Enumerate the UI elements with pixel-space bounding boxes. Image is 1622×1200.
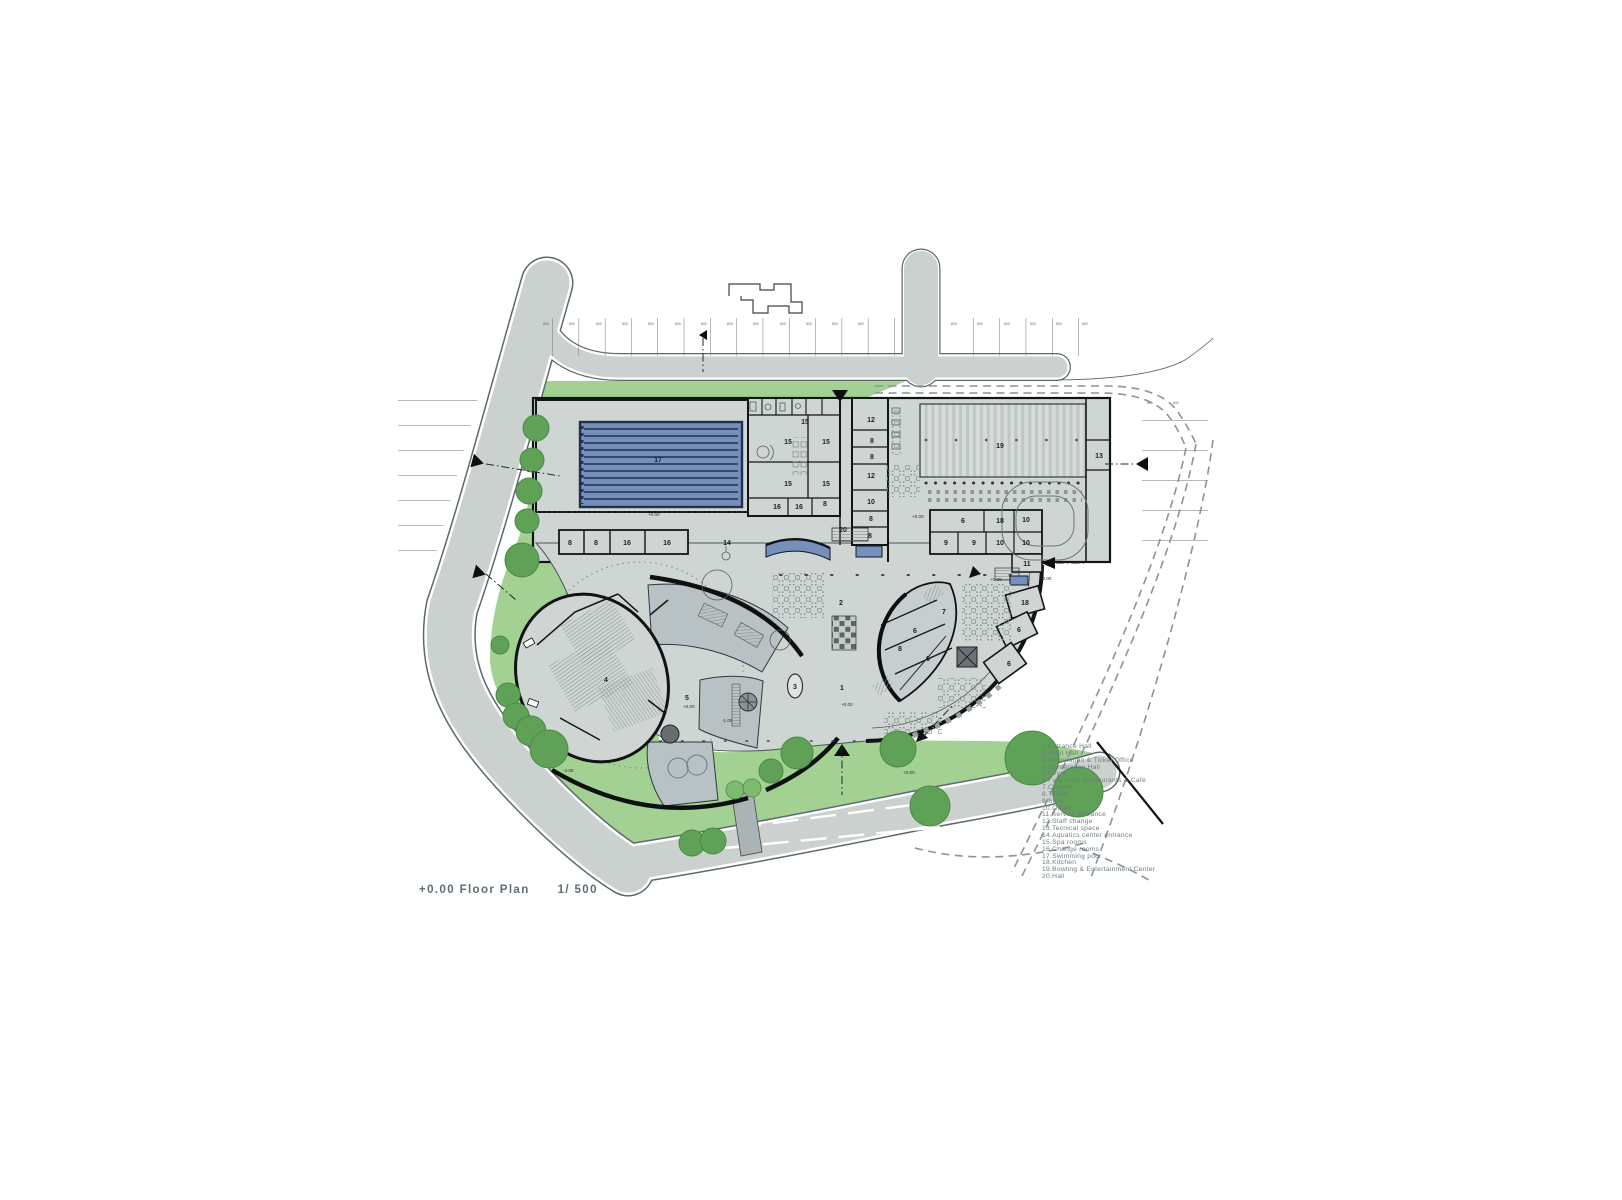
parking-dimension: 800 — [1030, 322, 1036, 326]
room-label: 8 — [870, 454, 874, 461]
parking-dimension: 800 — [977, 322, 983, 326]
legend: 1.Entrance Hall2.Main Hall3.Information … — [1042, 744, 1155, 881]
room-label: 10 — [1022, 540, 1030, 547]
room-label: 8 — [898, 646, 902, 653]
room-label: 18 — [996, 518, 1004, 525]
stairs — [732, 684, 740, 726]
parking-dimension: 800 — [675, 322, 681, 326]
parking-dimension: 800 — [1004, 322, 1010, 326]
room-label: 6 — [1007, 661, 1011, 668]
elevation-marker: -4.00 — [563, 768, 574, 773]
parking-dimension: 800 — [753, 322, 759, 326]
elevation-marker: +0.00 — [903, 770, 915, 775]
room-label: 6 — [913, 628, 917, 635]
parking-dimension: 800 — [569, 322, 575, 326]
room-label: 7 — [942, 609, 946, 616]
elevation-marker: +0.00 — [683, 704, 695, 709]
cafe-tables — [962, 583, 1012, 641]
sauna-benches — [791, 437, 807, 475]
room-label: 8 — [594, 540, 598, 547]
room-label: 15 — [784, 439, 792, 446]
legend-item: 20.Hall — [1042, 874, 1155, 881]
elevation-marker: +0.00 — [990, 577, 1002, 582]
room-label: 16 — [623, 540, 631, 547]
room-label: 4 — [604, 677, 608, 684]
elevation-marker: -2.00 — [1041, 576, 1052, 581]
room-label: 11 — [1023, 561, 1031, 568]
elevation-marker: +0.00 — [841, 702, 853, 707]
title-text: +0.00 Floor Plan — [419, 884, 530, 896]
room-label: 16 — [795, 504, 803, 511]
room-label: 12 — [867, 473, 875, 480]
parking-dimension: 800 — [832, 322, 838, 326]
room-label: 10 — [996, 540, 1004, 547]
parking-dimension: 800 — [1082, 322, 1088, 326]
room-label: 3 — [793, 684, 797, 691]
parking-dimension: 800 — [806, 322, 812, 326]
room-label: 17 — [654, 457, 662, 464]
room-label: 12 — [867, 417, 875, 424]
elevation-marker: +0.00 — [648, 512, 660, 517]
cafe-tables — [890, 410, 902, 455]
existing-building-outline — [729, 284, 802, 313]
cafe-tables — [886, 465, 920, 497]
kiosk — [661, 725, 679, 743]
parking-dimension: 800 — [648, 322, 654, 326]
room-label: 1 — [840, 685, 844, 692]
floor-plan-drawing: 1788161614151515151516168128812108820191… — [0, 0, 1622, 1200]
drawing-title: +0.00 Floor Plan1/ 500 — [419, 884, 598, 896]
bowling-lanes — [920, 404, 1086, 477]
room-label: 15 — [822, 439, 830, 446]
stair-core — [957, 647, 977, 667]
ramp-blue — [1010, 576, 1028, 585]
hall-furniture — [832, 616, 856, 650]
elevation-marker: +0.00 — [912, 514, 924, 519]
room-label: 10 — [867, 499, 875, 506]
room-label: 6 — [961, 518, 965, 525]
room-label: 8 — [870, 438, 874, 445]
green-strip-top — [533, 381, 906, 398]
room-label: 16 — [773, 504, 781, 511]
room-label: 6 — [926, 656, 930, 663]
room-label: 8 — [823, 501, 827, 508]
parking-dimension: 800 — [1173, 401, 1179, 405]
room-label: 8 — [568, 540, 572, 547]
room-label: 13 — [1095, 453, 1103, 460]
elevation-marker: -1.00 — [722, 718, 733, 723]
parking-dimension: 800 — [951, 322, 957, 326]
parking-dimension: 800 — [622, 322, 628, 326]
room-label: 20 — [839, 527, 847, 534]
room-label: 10 — [1022, 517, 1030, 524]
parking-dimension: 800 — [701, 322, 707, 326]
stair-blue — [856, 546, 882, 557]
room-label: 8 — [869, 516, 873, 523]
room-label: 15 — [801, 419, 809, 426]
parking-dimension: 800 — [858, 322, 864, 326]
room-label: 2 — [839, 600, 843, 607]
parking-dimension: 800 — [780, 322, 786, 326]
terrace-south — [647, 742, 718, 806]
room-label: 14 — [723, 540, 731, 547]
room-label: 8 — [868, 533, 872, 540]
parking-dimension: 800 — [543, 322, 549, 326]
room-label: 18 — [1021, 600, 1029, 607]
cafe-tables — [884, 712, 942, 734]
room-label: 15 — [784, 481, 792, 488]
hall-ramp — [832, 528, 868, 541]
room-label: 16 — [663, 540, 671, 547]
title-scale: 1/ 500 — [558, 884, 598, 896]
room-label: 15 — [822, 481, 830, 488]
cafe-tables — [772, 572, 824, 618]
parking-dimension: 800 — [727, 322, 733, 326]
parking-dimension: 800 — [1147, 401, 1153, 405]
room-label: 19 — [996, 443, 1004, 450]
parking-dimension: 800 — [596, 322, 602, 326]
parking-dimension: 800 — [1056, 322, 1062, 326]
room-label: 5 — [685, 695, 689, 702]
floor-plan-page: 1788161614151515151516168128812108820191… — [0, 0, 1622, 1200]
room-label: 9 — [972, 540, 976, 547]
room-label: 6 — [1017, 627, 1021, 634]
room-label: 9 — [944, 540, 948, 547]
